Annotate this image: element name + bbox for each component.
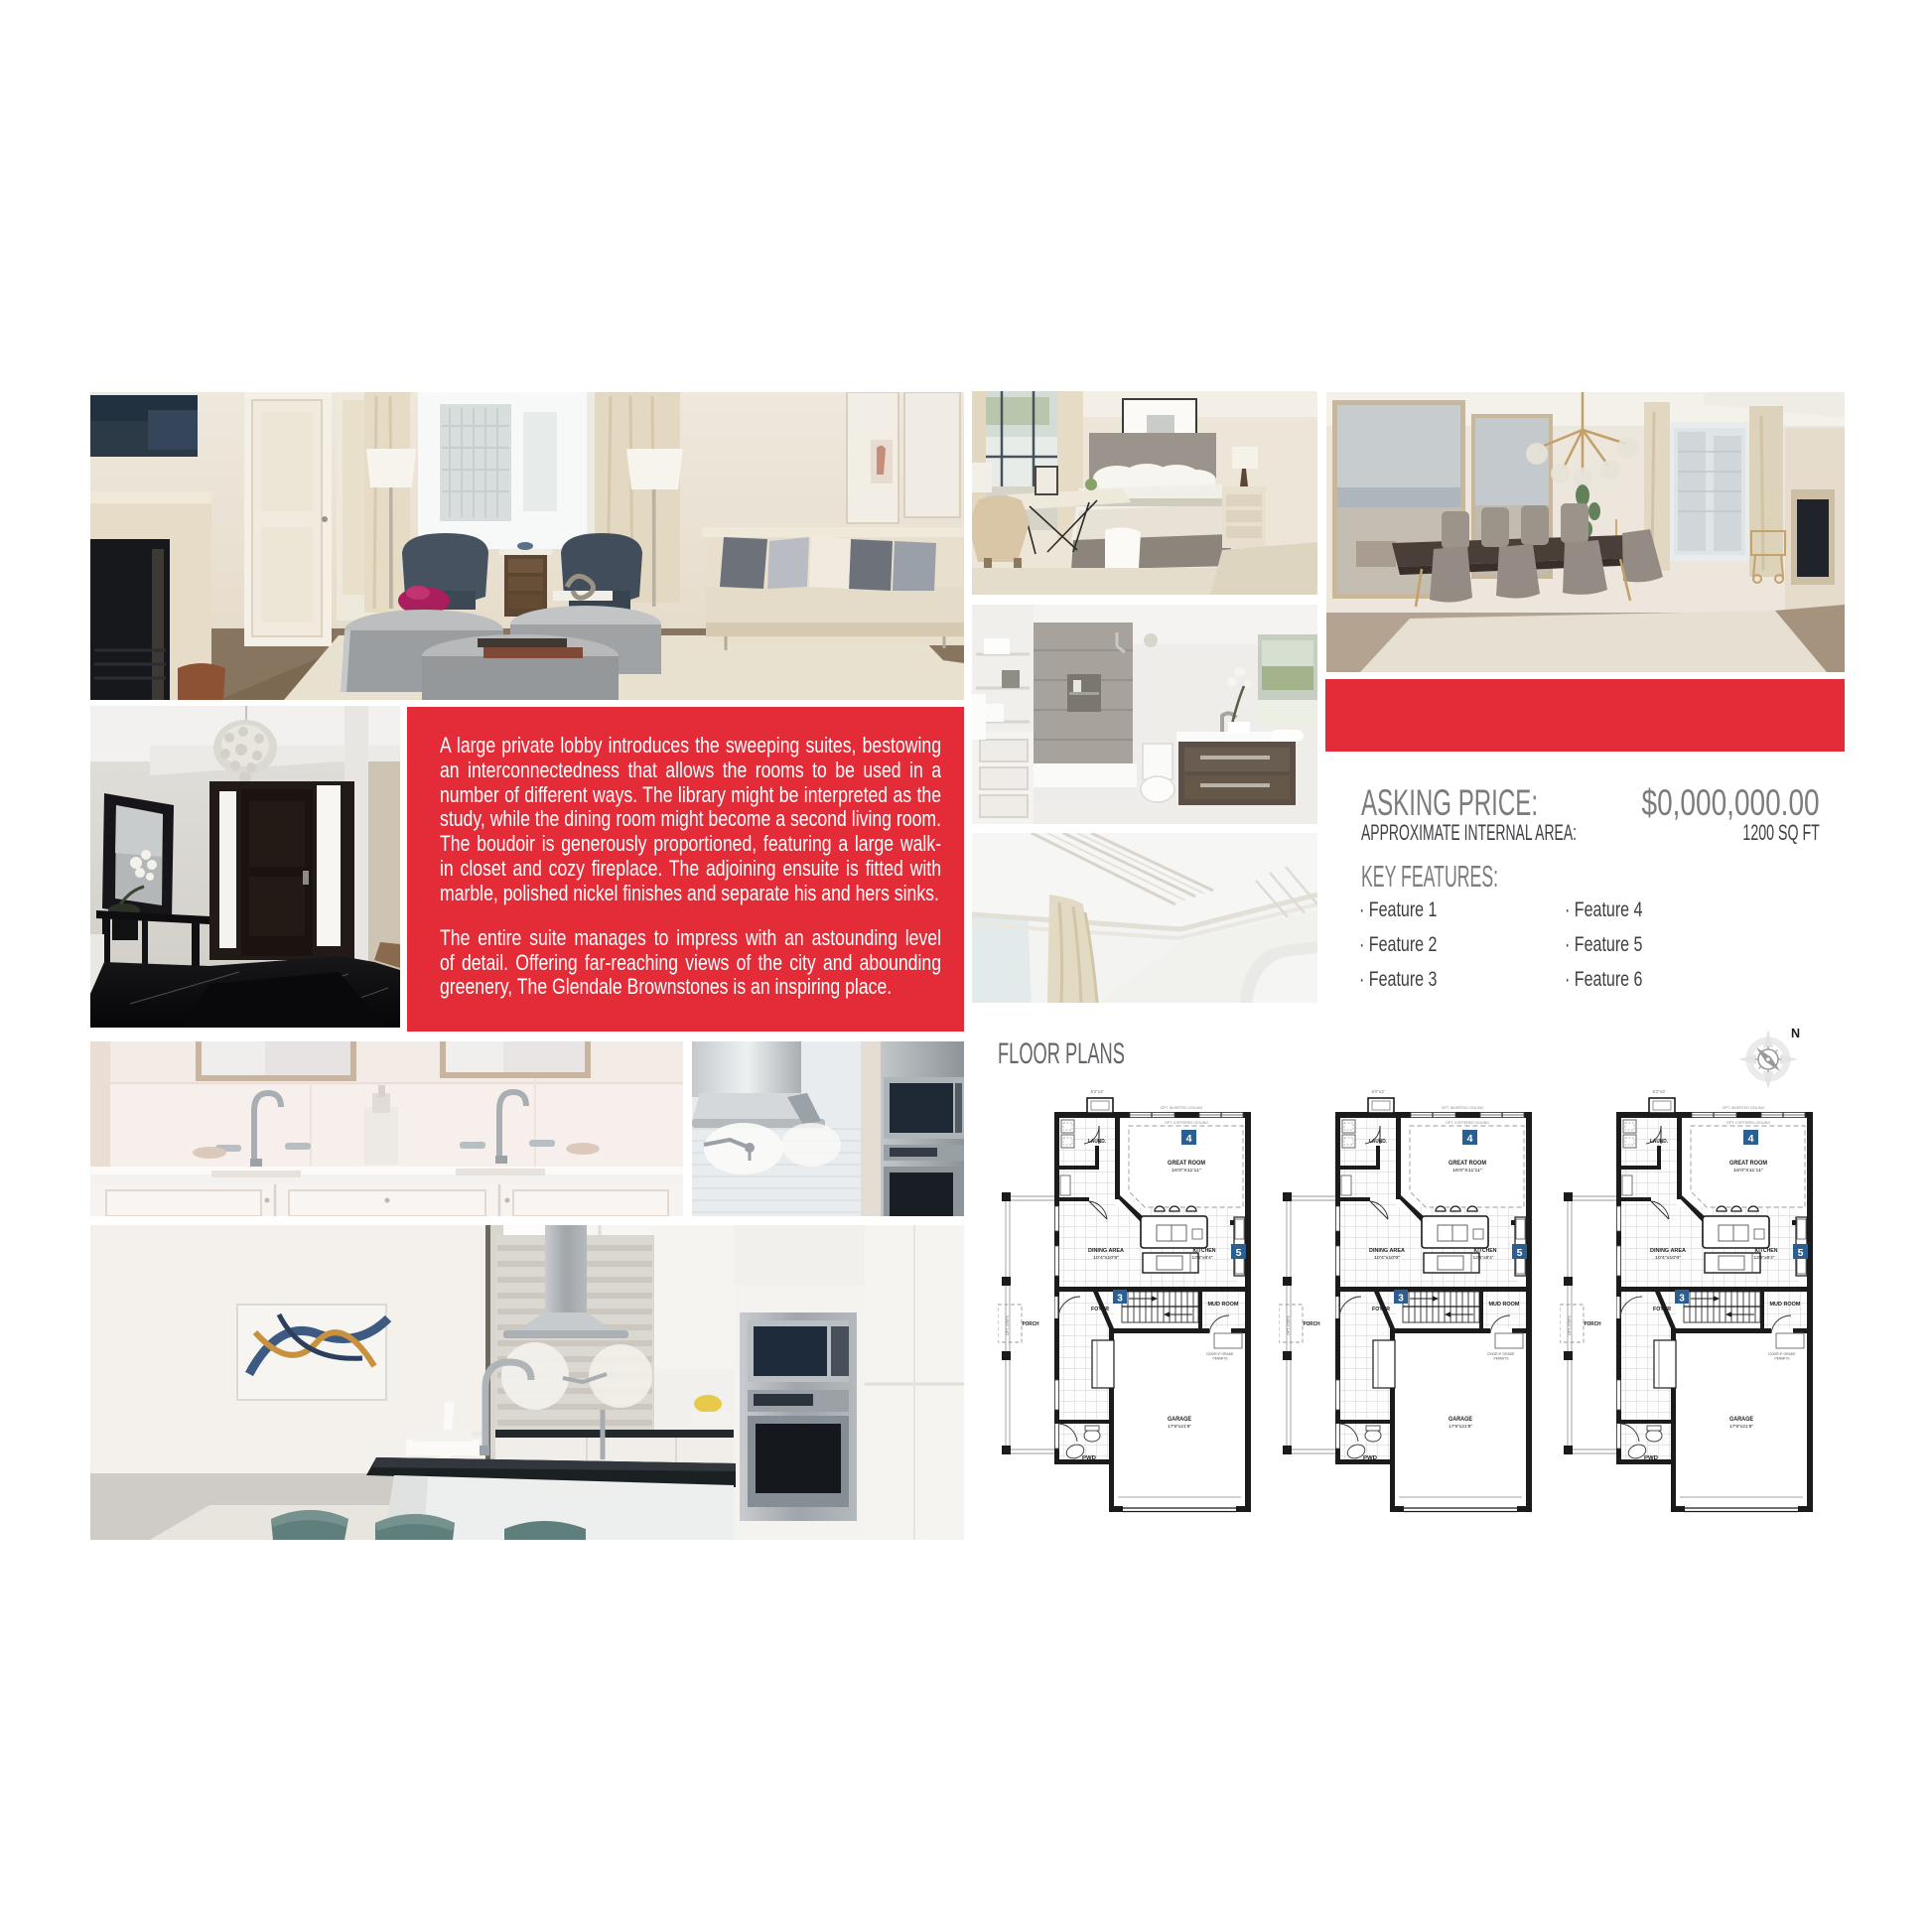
svg-text:N: N	[1791, 1027, 1800, 1040]
